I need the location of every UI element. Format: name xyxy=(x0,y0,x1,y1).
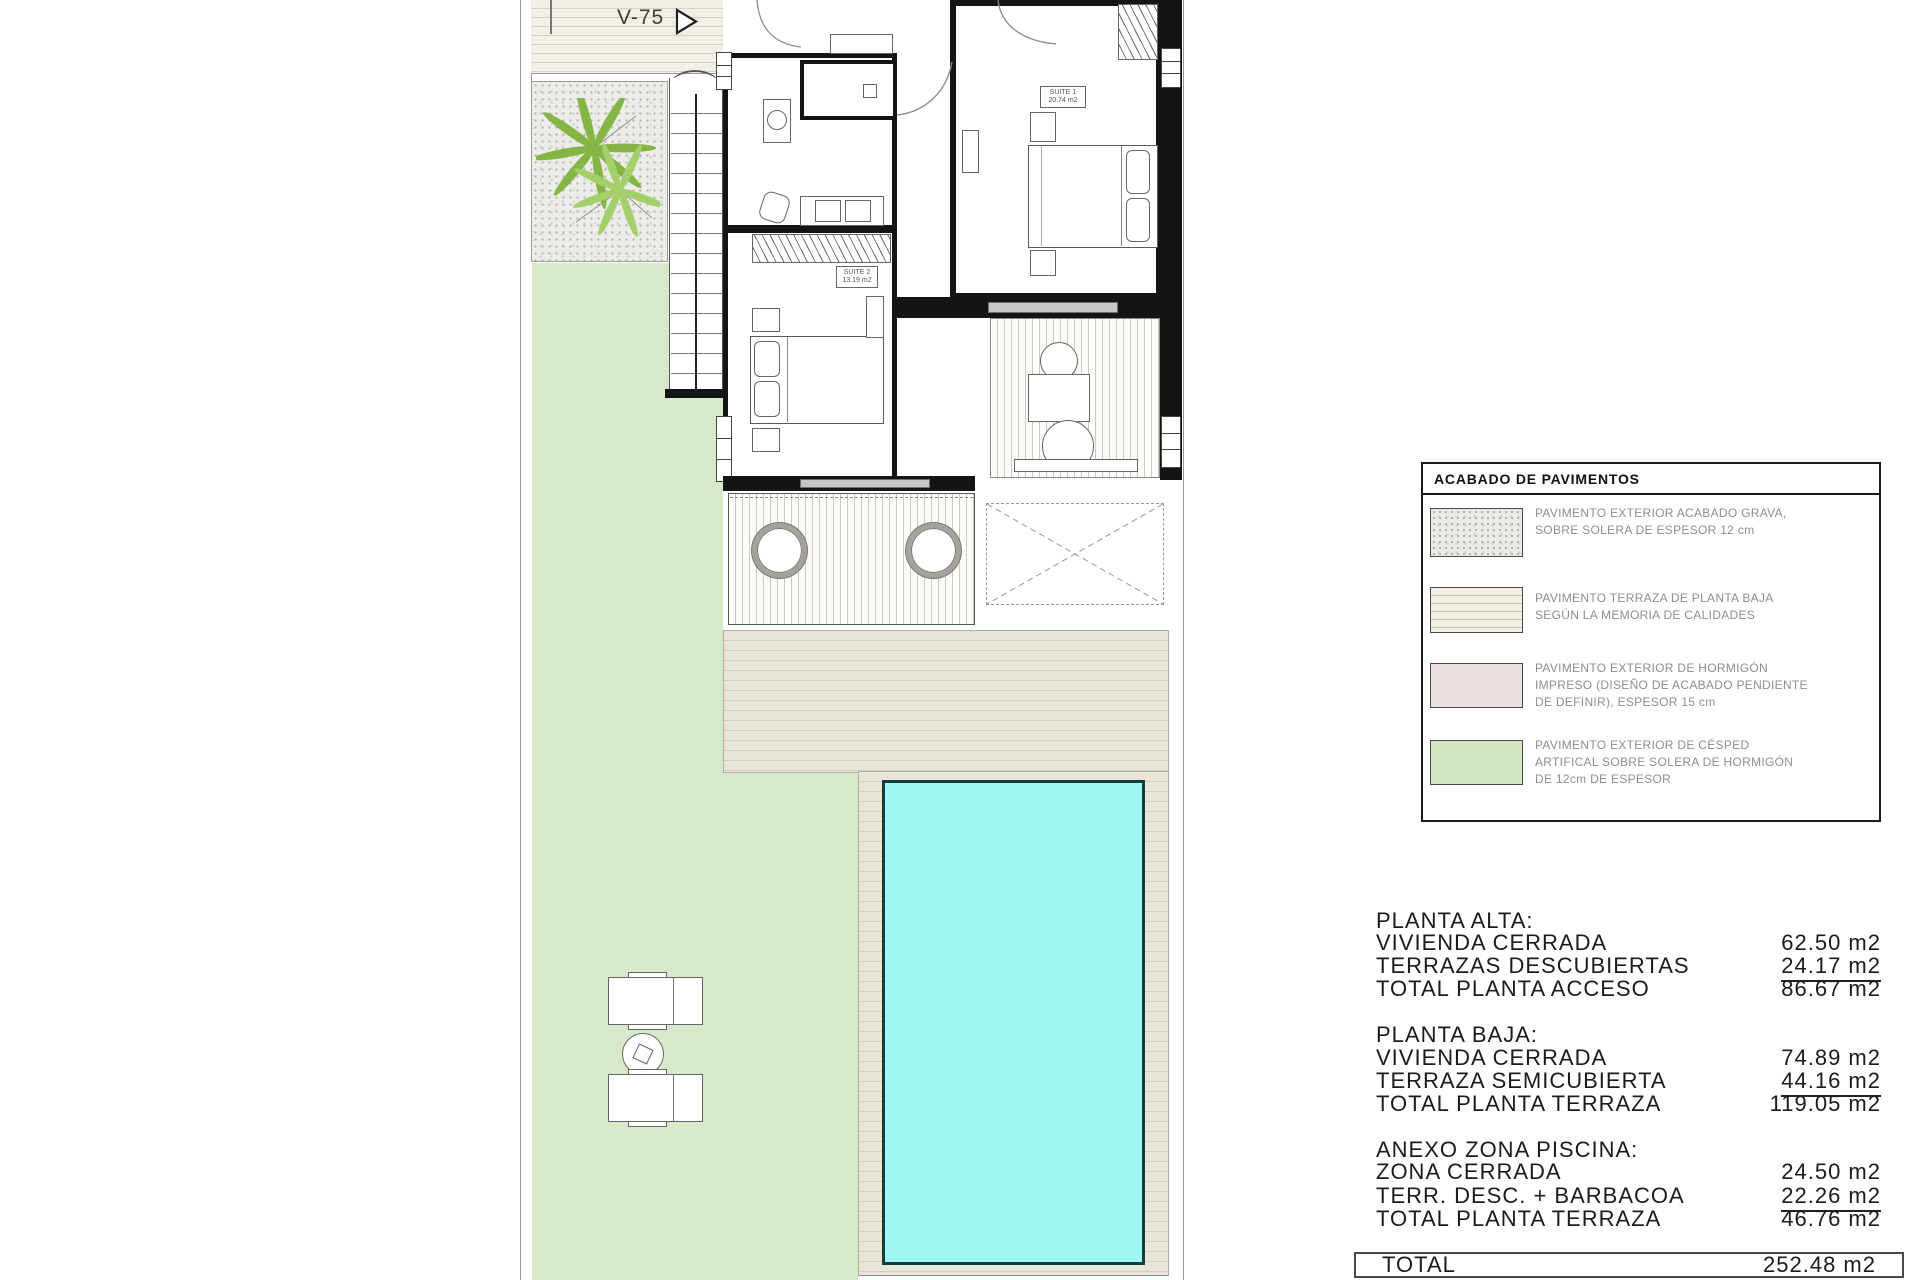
table-divider xyxy=(673,1075,674,1121)
legend-item-text: PAVIMENTO EXTERIOR DE HORMIGÓN IMPRESO (… xyxy=(1535,660,1808,711)
legend-title: ACABADO DE PAVIMENTOS xyxy=(1434,471,1640,487)
pillow xyxy=(754,341,780,377)
room-area: 13.19 m2 xyxy=(837,277,877,285)
street-direction-arrow-icon xyxy=(675,8,699,35)
legend-text-line: PAVIMENTO EXTERIOR DE HORMIGÓN xyxy=(1535,660,1808,677)
total-label: TOTAL xyxy=(1382,1252,1456,1278)
legend-text-line: PAVIMENTO EXTERIOR DE CÉSPED xyxy=(1535,737,1793,754)
pergola-outline xyxy=(986,503,1164,605)
terrace-paving-upper xyxy=(723,630,1169,773)
suite2-nightstand xyxy=(752,428,780,452)
swimming-pool xyxy=(882,780,1145,1265)
suite2-wardrobe xyxy=(752,234,891,263)
legend-item-text: PAVIMENTO EXTERIOR ACABADO GRAVA, SOBRE … xyxy=(1535,505,1787,539)
vanity-sink xyxy=(845,200,871,222)
total-value: 252.48 m2 xyxy=(1763,1252,1876,1278)
area-row-value: 86.67 m2 xyxy=(1781,976,1881,1002)
room-name: SUITE 2 xyxy=(837,269,877,277)
legend-item-text: PAVIMENTO EXTERIOR DE CÉSPED ARTIFICAL S… xyxy=(1535,737,1793,788)
garden-table-tab xyxy=(628,1024,667,1030)
area-row-label: TOTAL PLANTA TERRAZA xyxy=(1376,1091,1661,1117)
suite2-label: SUITE 2 13.19 m2 xyxy=(836,266,878,288)
vanity-sink xyxy=(815,200,841,222)
plot-boundary-right xyxy=(1183,0,1184,1280)
lawn-area-left xyxy=(532,263,723,1280)
suite2-glazing xyxy=(800,479,930,488)
total-box: TOTAL 252.48 m2 xyxy=(1354,1252,1904,1278)
suite1-glazing xyxy=(988,302,1118,313)
legend-swatch-terrace xyxy=(1430,587,1523,633)
area-row-label: TOTAL PLANTA ACCESO xyxy=(1376,976,1650,1002)
bed-foot-line xyxy=(1041,146,1042,246)
lawn-area-lower xyxy=(723,771,858,1280)
legend-text-line: IMPRESO (DISEÑO DE ACABADO PENDIENTE xyxy=(1535,677,1808,694)
garden-table xyxy=(608,977,703,1025)
deck-chair xyxy=(906,523,961,578)
garden-table-tab xyxy=(628,1121,667,1127)
garden-table-tab xyxy=(628,972,667,978)
terrace-desk xyxy=(1028,374,1090,422)
area-row-value: 24.50 m2 xyxy=(1781,1159,1881,1185)
suite1-bed xyxy=(1028,145,1158,248)
garden-table-tab xyxy=(628,1069,667,1075)
area-row-value: 119.05 m2 xyxy=(1770,1091,1881,1117)
area-row-label: TOTAL PLANTA TERRAZA xyxy=(1376,1206,1661,1232)
bed-divider xyxy=(1121,146,1122,246)
suite2-dresser xyxy=(866,296,884,338)
plot-boundary-left xyxy=(520,0,521,1280)
stair-center-rail xyxy=(695,94,697,389)
terrace-window xyxy=(1161,416,1181,468)
legend-text-line: PAVIMENTO TERRAZA DE PLANTA BAJA xyxy=(1535,590,1774,607)
floor-plan-sheet: V-75 xyxy=(0,0,1920,1280)
chair-seat xyxy=(632,1043,653,1064)
area-row-value: 46.76 m2 xyxy=(1781,1206,1881,1232)
deck-chair xyxy=(752,523,807,578)
area-row-label: ZONA CERRADA xyxy=(1376,1159,1562,1185)
barbecue-bench xyxy=(1014,459,1138,472)
suite2-bed xyxy=(750,336,884,424)
bed-divider xyxy=(787,337,788,422)
door-swing-arcs xyxy=(700,0,1170,140)
legend-swatch-gravel xyxy=(1430,508,1523,557)
legend-text-line: ARTIFICAL SOBRE SOLERA DE HORMIGÓN xyxy=(1535,754,1793,771)
legend-swatch-concrete xyxy=(1430,663,1523,708)
pillow xyxy=(754,381,780,417)
legend-swatch-grass xyxy=(1430,740,1523,785)
legend-title-rule xyxy=(1421,493,1881,495)
stair-bottom-wall xyxy=(665,389,727,398)
street-label: V-75 xyxy=(617,6,664,30)
double-vanity xyxy=(800,196,884,226)
suite1-nightstand xyxy=(1030,250,1056,276)
legend-text-line: DE DEFINIR), ESPESOR 15 cm xyxy=(1535,694,1808,711)
suite2-nightstand xyxy=(752,308,780,332)
legend-text-line: SOBRE SOLERA DE ESPESOR 12 cm xyxy=(1535,522,1787,539)
legend-text-line: SEGÚN LA MEMORIA DE CALIDADES xyxy=(1535,607,1774,624)
table-divider xyxy=(673,978,674,1024)
pergola-diagonals xyxy=(987,504,1163,604)
pillow xyxy=(1126,198,1150,242)
legend-text-line: DE 12cm DE ESPESOR xyxy=(1535,771,1793,788)
pillow xyxy=(1126,150,1150,194)
garden-table xyxy=(608,1074,703,1122)
deck-dashed-edge xyxy=(730,497,973,498)
legend-text-line: PAVIMENTO EXTERIOR ACABADO GRAVA, xyxy=(1535,505,1787,522)
legend-item-text: PAVIMENTO TERRAZA DE PLANTA BAJA SEGÚN L… xyxy=(1535,590,1774,624)
palm-plant-icon xyxy=(536,98,660,238)
suite2-window xyxy=(716,416,732,482)
gate-mark xyxy=(550,0,552,34)
